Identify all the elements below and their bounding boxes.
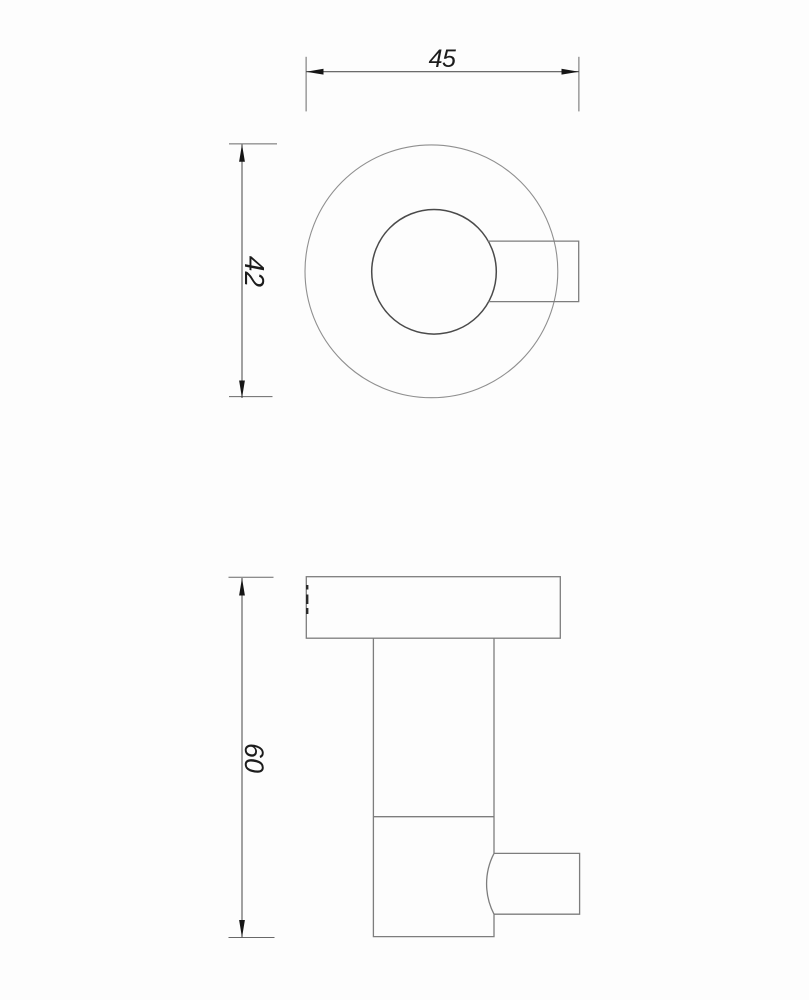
svg-text:42: 42 bbox=[239, 256, 270, 288]
svg-text:45: 45 bbox=[429, 45, 456, 73]
svg-text:60: 60 bbox=[239, 743, 269, 773]
